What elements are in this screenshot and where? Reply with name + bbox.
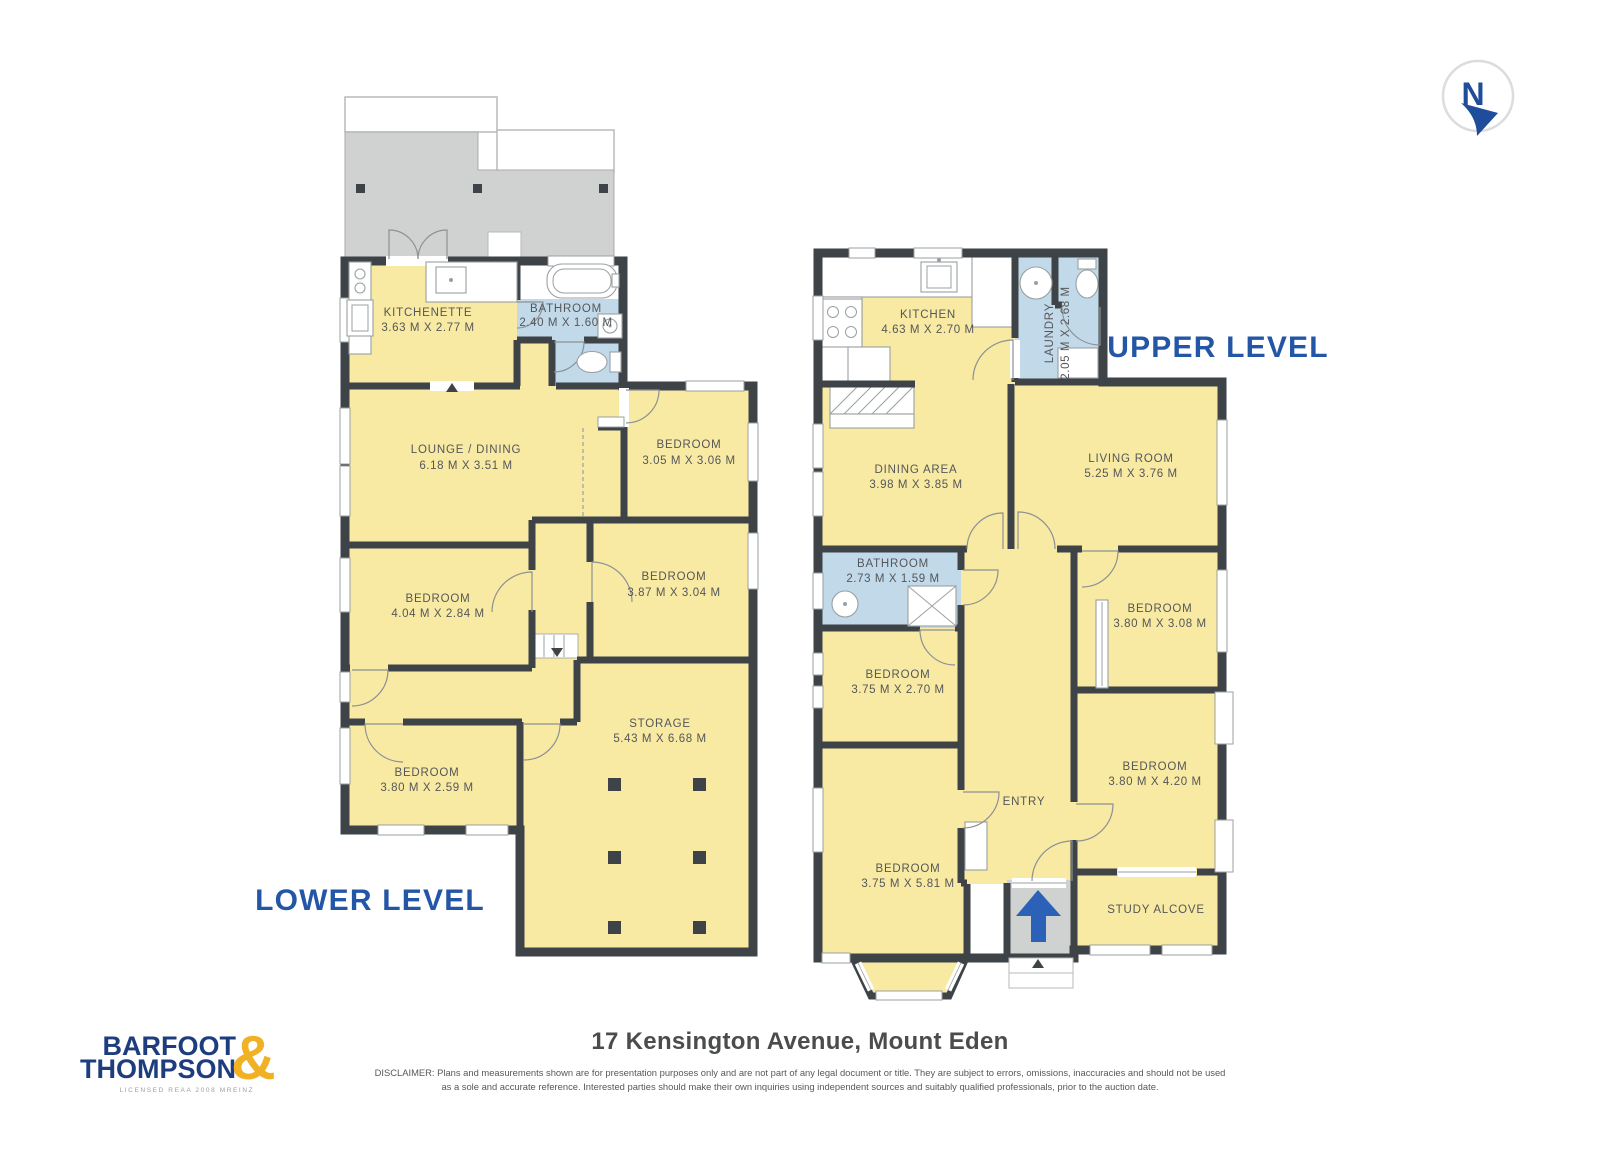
deck: [345, 97, 614, 258]
upper-level-plan: KITCHEN 4.63 M X 2.70 M LAUNDRY 2.05 M X…: [813, 248, 1329, 1000]
room-label-bedroom: BEDROOM: [394, 767, 459, 779]
room-label-storage: STORAGE: [629, 718, 691, 730]
room-label-living-room: LIVING ROOM: [1088, 453, 1173, 465]
toilet-icon: [1076, 270, 1098, 298]
svg-text:5.43 M X 6.68 M: 5.43 M X 6.68 M: [613, 733, 706, 745]
lower-level-label: LOWER LEVEL: [255, 884, 485, 917]
svg-text:3.98 M X 3.85 M: 3.98 M X 3.85 M: [869, 479, 962, 491]
room-label-laundry: LAUNDRY: [1044, 303, 1056, 363]
stairs-to-storage: [532, 634, 578, 658]
svg-text:4.63 M X 2.70 M: 4.63 M X 2.70 M: [881, 324, 974, 336]
room-label-bedroom: BEDROOM: [875, 863, 940, 875]
disclaimer: DISCLAIMER: Plans and measurements shown…: [0, 1066, 1600, 1093]
north-compass: N: [1443, 61, 1513, 136]
room-label-entry: ENTRY: [1003, 796, 1046, 808]
svg-text:2.40 M X 1.60 M: 2.40 M X 1.60 M: [519, 317, 612, 329]
svg-text:3.75 M X 2.70 M: 3.75 M X 2.70 M: [851, 684, 944, 696]
cooktop-burner-icon: [355, 269, 365, 279]
svg-text:3.80 M X 4.20 M: 3.80 M X 4.20 M: [1108, 776, 1201, 788]
room-label-bedroom: BEDROOM: [641, 571, 706, 583]
toilet-cistern-icon: [1078, 259, 1096, 269]
lower-level-plan: KITCHENETTE 3.63 M X 2.77 M BATHROOM 2.4…: [255, 97, 758, 952]
room-label-bathroom: BATHROOM: [530, 303, 602, 315]
disclaimer-line-1: DISCLAIMER: Plans and measurements shown…: [310, 1066, 1290, 1080]
room-label-bedroom: BEDROOM: [1127, 603, 1192, 615]
room-label-bedroom: BEDROOM: [656, 439, 721, 451]
svg-text:3.75 M X 5.81 M: 3.75 M X 5.81 M: [861, 878, 954, 890]
cooktop-burner-icon: [355, 283, 365, 293]
floor-plan-drawing: KITCHENETTE 3.63 M X 2.77 M BATHROOM 2.4…: [0, 0, 1600, 1167]
stairwell-hatch: [830, 386, 914, 428]
svg-text:5.25 M X 3.76 M: 5.25 M X 3.76 M: [1084, 468, 1177, 480]
toilet-cistern-icon: [610, 352, 621, 372]
room-label-dining-area: DINING AREA: [875, 464, 958, 476]
floor-plan-page: KITCHENETTE 3.63 M X 2.77 M BATHROOM 2.4…: [0, 0, 1600, 1167]
svg-text:2.05 M X 2.68 M: 2.05 M X 2.68 M: [1060, 286, 1072, 379]
room-label-kitchenette: KITCHENETTE: [384, 307, 473, 319]
disclaimer-line-2: as a sole and accurate reference. Intere…: [310, 1080, 1290, 1094]
room-label-kitchen: KITCHEN: [900, 309, 956, 321]
svg-text:3.80 M X 3.08 M: 3.80 M X 3.08 M: [1113, 618, 1206, 630]
room-label-bedroom: BEDROOM: [865, 669, 930, 681]
room-label-lounge-dining: LOUNGE / DINING: [411, 444, 521, 456]
svg-text:3.05 M X 3.06 M: 3.05 M X 3.06 M: [642, 455, 735, 467]
porch-steps: [1009, 958, 1073, 988]
svg-text:3.80 M X 2.59 M: 3.80 M X 2.59 M: [380, 782, 473, 794]
room-label-bedroom: BEDROOM: [1122, 761, 1187, 773]
svg-text:3.63 M X 2.77 M: 3.63 M X 2.77 M: [381, 322, 474, 334]
svg-text:4.04 M X 2.84 M: 4.04 M X 2.84 M: [391, 608, 484, 620]
svg-text:3.87 M X 3.04 M: 3.87 M X 3.04 M: [627, 587, 720, 599]
room-label-bathroom: BATHROOM: [857, 558, 929, 570]
stove-icon: [822, 299, 862, 347]
upper-level-label: UPPER LEVEL: [1107, 331, 1329, 364]
closet: [965, 822, 987, 870]
toilet-icon: [577, 352, 607, 373]
svg-text:2.73 M X 1.59 M: 2.73 M X 1.59 M: [846, 573, 939, 585]
property-address: 17 Kensington Avenue, Mount Eden: [0, 1028, 1600, 1056]
room-label-study-alcove: STUDY ALCOVE: [1107, 904, 1205, 916]
svg-text:6.18 M X 3.51 M: 6.18 M X 3.51 M: [419, 460, 512, 472]
room-label-bedroom: BEDROOM: [405, 593, 470, 605]
tap-icon: [612, 274, 619, 287]
